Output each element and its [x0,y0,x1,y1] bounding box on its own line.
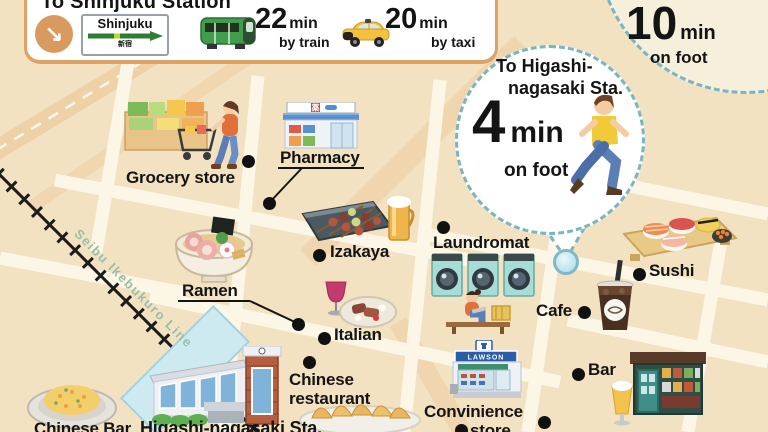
poi-dot-cafe [578,306,591,319]
station-label: Higashi-nagasaki Sta. [140,418,322,432]
taxi-minutes: 20 [385,5,417,34]
poi-label-pharmacy: Pharmacy [280,148,360,168]
poi-dot-convenience [538,416,551,429]
poi-dot-bar [572,368,585,381]
taxi-icon [341,19,391,49]
near-walk-mode: on foot [504,160,568,182]
train-icon [199,15,257,51]
train-minutes: 22 [255,5,287,34]
poi-dot-grocery [242,155,255,168]
poi-label-cafe: Cafe [536,301,572,321]
far-station-bubble-text: 10 min on foot [626,0,716,68]
taxi-mode: by taxi [431,34,475,50]
far-walk-mode: on foot [650,48,716,68]
shinjuku-sign-en: Shinjuku [83,17,167,31]
banner-title: To Shinjuku Station [41,0,231,14]
bubble-destination-line1: To Higashi- [496,56,593,77]
shinjuku-access-banner: To Shinjuku Station ↘ Shinjuku 新宿 22 min… [24,0,498,64]
poi-dot-italian [318,332,331,345]
poi-label-chinese-line2: restaurant [289,389,370,409]
poi-label-bar: Bar [588,360,616,380]
near-walk-unit: min [510,116,563,150]
shinjuku-sign-line [86,31,164,41]
near-station-bubble: To Higashi- nagasaki Sta. 4 min on foot [455,45,645,235]
shinjuku-station-sign: Shinjuku 新宿 [81,14,169,56]
shinjuku-sign-jp: 新宿 [83,41,167,49]
near-walk-minutes: 4 [472,92,505,152]
far-walk-minutes: 10 [626,0,677,46]
poi-dot-izakaya [313,249,326,262]
poi-dot-chinese-restaurant [303,356,316,369]
poi-label-italian: Italian [334,325,382,345]
poi-label-chinese-line1: Chinese [289,370,354,390]
poi-label-convenience-line2: store [470,421,511,432]
poi-dot-pharmacy [263,197,276,210]
poi-dot-ramen [292,318,305,331]
poi-label-grocery: Grocery store [126,168,235,188]
poi-label-convenience-line1: Convinience [424,402,523,422]
poi-label-laundromat: Laundromat [433,233,529,253]
map-canvas: Seibu Ikebukuro Line 薬 [0,0,768,432]
poi-dot-sushi [633,268,646,281]
direction-arrow-icon: ↘ [35,15,73,53]
poi-label-sushi: Sushi [649,261,694,281]
far-walk-unit: min [680,22,716,45]
poi-label-izakaya: Izakaya [330,242,389,262]
station-marker [553,249,579,275]
train-mode: by train [279,34,330,50]
train-unit: min [289,15,317,33]
poi-label-ramen: Ramen [182,281,238,301]
poi-label-chinese-bar: Chinese Bar [34,419,131,432]
poi-dot-convenience-store-word [455,424,468,432]
walking-person-illustration [568,92,634,202]
taxi-unit: min [419,15,447,33]
